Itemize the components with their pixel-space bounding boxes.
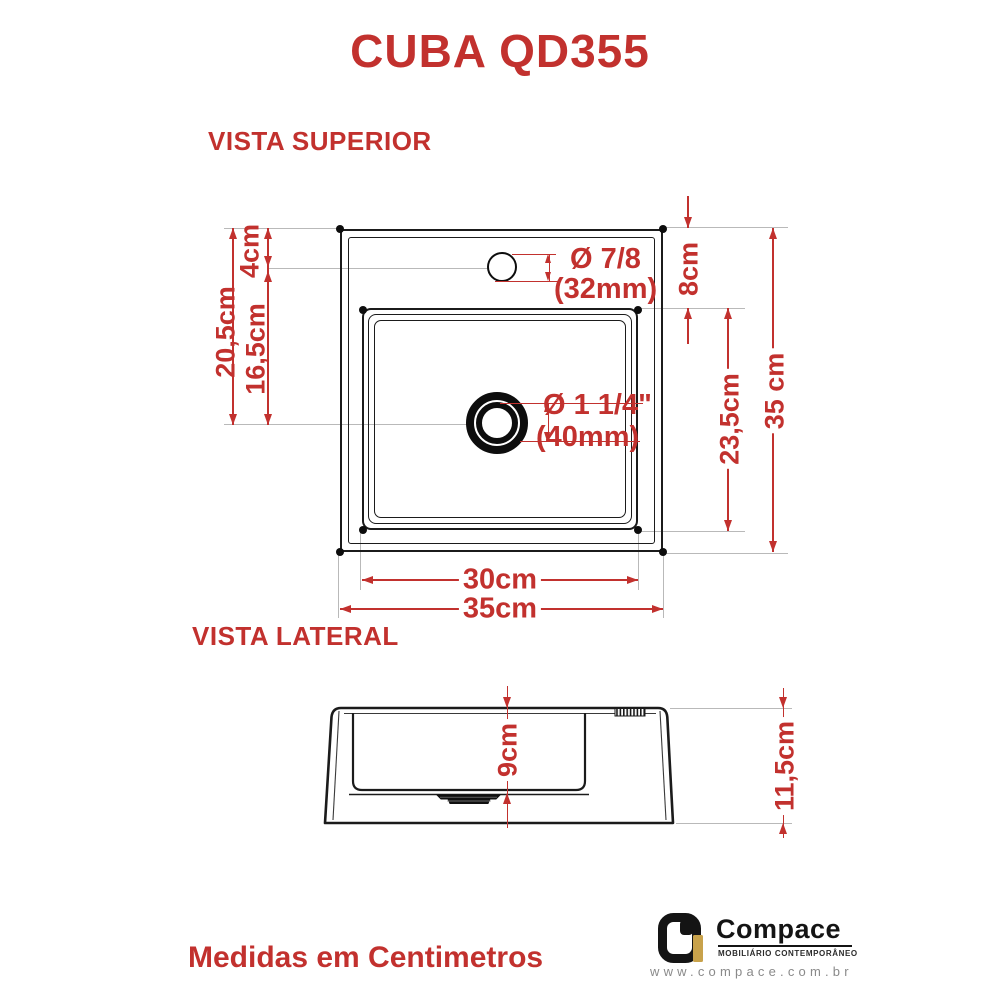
corner-dot (659, 548, 667, 556)
faucet-dia-label-inches: Ø 7/8 (570, 245, 641, 274)
dim-label-9cm: 9cm (494, 719, 523, 781)
faucet-dia-line-bottom (495, 281, 558, 282)
dim-label-30cm: 30cm (459, 565, 541, 596)
arrowhead (684, 217, 692, 228)
faucet-hole (487, 252, 517, 282)
dim-label-16-5cm: 16,5cm (243, 303, 270, 395)
brand-url: www.compace.com.br (650, 965, 853, 978)
compace-logo-icon (658, 913, 704, 963)
brand-tagline: MOBILIÁRIO CONTEMPORÂNEO (718, 950, 858, 958)
brand-divider (718, 945, 852, 947)
arrowhead (362, 576, 373, 584)
arrowhead (724, 520, 732, 531)
arrowhead (724, 308, 732, 319)
units-note: Medidas em Centimetros (188, 941, 543, 975)
drain-dia-label-inches: Ø 1 1/4" (543, 391, 652, 420)
side-view-faucet-hole-section (615, 709, 645, 717)
corner-dot (359, 306, 367, 314)
arrowhead (545, 272, 551, 281)
drain-hole-inner-ring (476, 402, 518, 444)
dim-label-11-5cm: 11,5cm (771, 717, 800, 815)
corner-dot (659, 225, 667, 233)
logo-inner-block (680, 920, 693, 935)
dim-label-4cm: 4cm (237, 224, 264, 278)
dim-label-8cm: 8cm (676, 242, 703, 296)
arrowhead (264, 256, 272, 267)
arrowhead (769, 228, 777, 239)
dim-label-23-5cm: 23,5cm (716, 369, 745, 469)
dim-label-20-5cm: 20,5cm (213, 286, 240, 378)
ext-line-35cm-right (663, 554, 664, 618)
corner-dot (336, 225, 344, 233)
arrowhead (684, 308, 692, 319)
arrowhead (779, 823, 787, 834)
arrowhead (652, 605, 663, 613)
arrowhead (264, 271, 272, 282)
faucet-dia-label-mm: (32mm) (554, 275, 657, 304)
arrowhead (503, 793, 511, 804)
arrowhead (264, 414, 272, 425)
dim-label-35cm-bottom: 35cm (459, 594, 541, 625)
page-title: CUBA QD355 (0, 24, 1000, 78)
drain-dia-label-mm: (40mm) (536, 423, 639, 452)
brand-name: Compace (716, 916, 841, 943)
ext-line-bottom-right (665, 553, 788, 554)
side-view-label: VISTA LATERAL (192, 621, 399, 652)
logo-gold-bar (693, 935, 703, 962)
arrowhead (264, 228, 272, 239)
dimension-drawing-page: CUBA QD355 VISTA SUPERIOR VISTA LATERAL … (0, 0, 1000, 1000)
corner-dot (634, 306, 642, 314)
arrowhead (229, 414, 237, 425)
arrowhead (779, 697, 787, 708)
dim-label-35cm-right: 35 cm (761, 349, 790, 434)
corner-dot (336, 548, 344, 556)
arrowhead (769, 541, 777, 552)
arrowhead (340, 605, 351, 613)
arrowhead (627, 576, 638, 584)
corner-dot (359, 526, 367, 534)
top-view-label: VISTA SUPERIOR (208, 126, 432, 157)
arrowhead (503, 697, 511, 708)
corner-dot (634, 526, 642, 534)
arrowhead (545, 254, 551, 263)
ext-line-35cm-left (338, 554, 339, 618)
